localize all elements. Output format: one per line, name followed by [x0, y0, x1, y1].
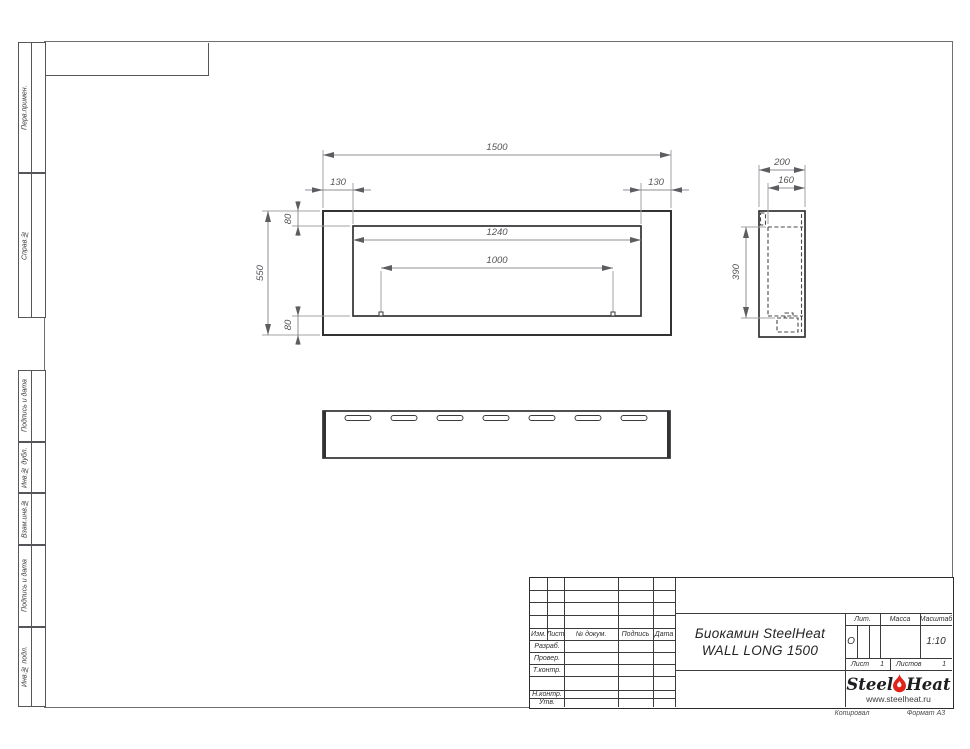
margin-box-divider: [31, 43, 32, 172]
margin-label: Взам.инв.№: [19, 494, 31, 544]
document-title-line1: Биокамин SteelHeat: [695, 625, 825, 642]
drawing-sheet: { "sheet": { "footer": { "copy_label": "…: [0, 0, 970, 749]
row-label-prover: Провер.: [530, 652, 564, 664]
margin-box-divider: [31, 494, 32, 544]
logo-text-steel: Steel: [846, 675, 893, 694]
sheet-number: 1: [880, 661, 884, 668]
margin-label: Инв.№ подл.: [19, 628, 31, 706]
row-label-tkontr: Т.контр.: [530, 664, 564, 676]
margin-box-sprav-no: Справ.№: [18, 173, 46, 318]
margin-box-divider: [31, 174, 32, 317]
margin-label: Подпись и дата: [19, 546, 31, 626]
sheet-label: Лист: [851, 661, 869, 668]
sheet-number-cell: Лист 1: [845, 658, 890, 670]
margin-label: Справ.№: [19, 174, 31, 317]
lit-value: О: [845, 625, 857, 658]
margin-label: Инв.№ дубл.: [19, 443, 31, 492]
logo-text-heat: Heat: [906, 675, 950, 694]
lit-header: Лит.: [845, 613, 880, 625]
copy-note: Копировал: [812, 710, 892, 717]
margin-box-inv-dubl: Инв.№ дубл.: [18, 442, 46, 493]
sheets-total: 1: [942, 661, 946, 668]
margin-box-divider: [31, 628, 32, 706]
margin-box-vzam-inv: Взам.инв.№: [18, 493, 46, 545]
scale-header: Масштаб: [920, 613, 952, 625]
col-header-data: Дата: [653, 628, 675, 640]
margin-box-divider: [31, 443, 32, 492]
col-header-list: Лист: [547, 628, 564, 640]
row-label-utv: Утв.: [530, 698, 564, 707]
col-header-podpis: Подпись: [618, 628, 653, 640]
margin-label: Перв.примен.: [19, 43, 31, 172]
margin-box-podpis-data-2: Подпись и дата: [18, 545, 46, 627]
sheets-label: Листов: [896, 661, 922, 668]
mass-header: Масса: [880, 613, 920, 625]
margin-label: Подпись и дата: [19, 371, 31, 441]
logo-url: www.steelheat.ru: [866, 694, 931, 704]
margin-box-divider: [31, 546, 32, 626]
top-left-stamp: [46, 43, 209, 76]
margin-box-inv-podl: Инв.№ подл.: [18, 627, 46, 707]
row-label-razrab: Разраб.: [530, 640, 564, 652]
margin-box-podpis-data-1: Подпись и дата: [18, 370, 46, 442]
sheets-total-cell: Листов 1: [890, 658, 952, 670]
flame-icon: [892, 674, 907, 694]
margin-box-perv-primen: Перв.примен.: [18, 42, 46, 173]
document-title: Биокамин SteelHeat WALL LONG 1500: [675, 613, 845, 670]
company-logo: Steel Heat www.steelheat.ru: [845, 670, 952, 707]
document-title-line2: WALL LONG 1500: [702, 642, 818, 659]
row-label-nkontr: Н.контр.: [530, 690, 564, 698]
col-header-ndokum: № докум.: [564, 628, 618, 640]
scale-value: 1:10: [920, 625, 952, 658]
margin-box-divider: [31, 371, 32, 441]
title-block: Изм. Лист № докум. Подпись Дата Разраб. …: [529, 577, 954, 709]
format-note: Формат А3: [888, 710, 964, 717]
col-header-izm: Изм.: [530, 628, 547, 640]
